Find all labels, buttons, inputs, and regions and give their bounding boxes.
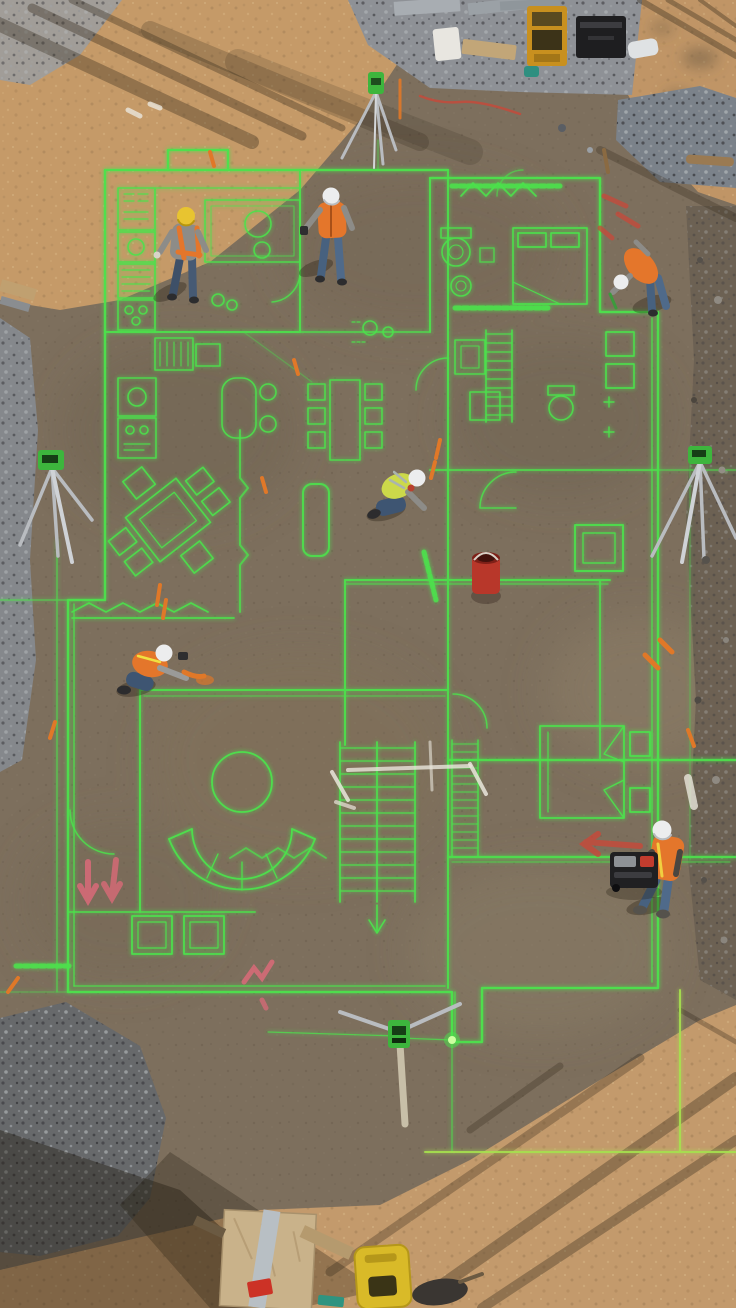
black-toolbox [576,16,626,58]
spray-can [178,652,188,660]
teal-bottle [524,66,539,77]
hardhat-white [156,645,173,662]
red-bucket [471,552,501,604]
yellow-tool-stand [527,6,567,66]
construction-site-photo: Aerial drone view of a residential const… [0,0,736,1308]
scene-canvas [0,0,736,1308]
hardhat-white [614,275,629,290]
rough-strip-texture [686,206,736,1000]
laser-node [444,1032,460,1048]
spray-paint-pool [196,675,214,685]
foam-block [432,27,461,62]
yellow-laser-case [354,1244,412,1308]
hardhat-white [409,470,426,487]
portable-generator [606,852,662,900]
ground [0,0,736,1308]
